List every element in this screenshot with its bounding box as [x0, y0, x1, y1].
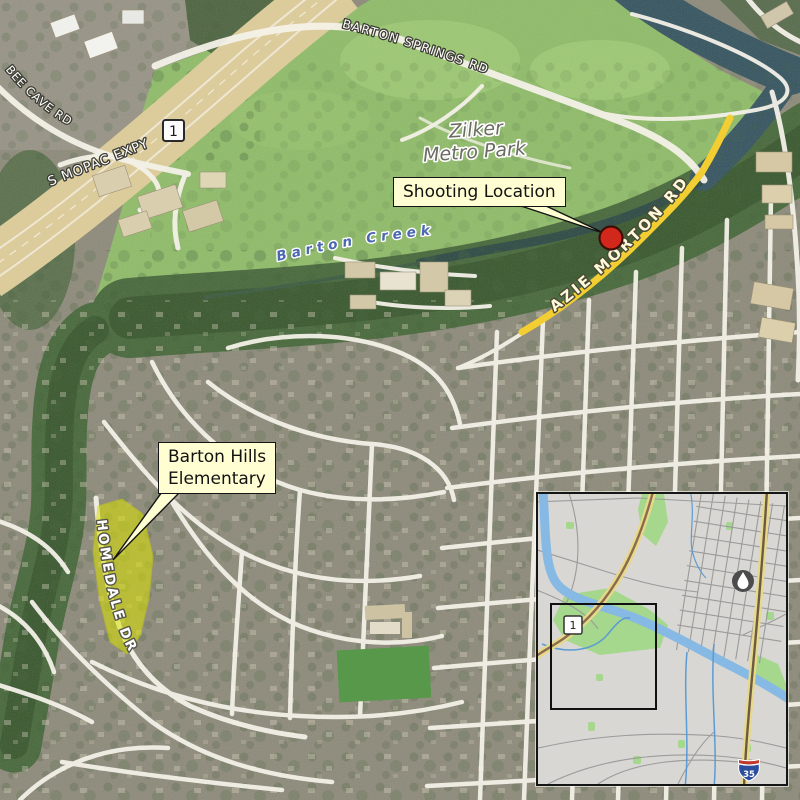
inset-overview-map: 1 35: [536, 492, 788, 786]
capitol-icon: [732, 570, 754, 592]
barton-hills-label-line1: Barton Hills: [168, 446, 266, 468]
route-shield-loop1: 1: [163, 120, 184, 141]
shooting-location-marker: [600, 227, 623, 250]
barton-hills-elementary-callout: Barton Hills Elementary: [158, 442, 276, 494]
barton-hills-label-line2: Elementary: [168, 468, 266, 490]
inset-route-shield-loop1: 1: [564, 616, 582, 634]
shooting-location-callout: Shooting Location: [393, 177, 566, 207]
svg-text:1: 1: [169, 124, 178, 140]
shooting-location-label: Shooting Location: [403, 181, 556, 203]
inset-svg: 1 35: [538, 494, 786, 784]
svg-text:1: 1: [570, 619, 577, 632]
svg-text:35: 35: [743, 770, 755, 780]
incident-map: BARTON SPRINGS RD BEE CAVE RD S MOPAC EX…: [0, 0, 800, 800]
